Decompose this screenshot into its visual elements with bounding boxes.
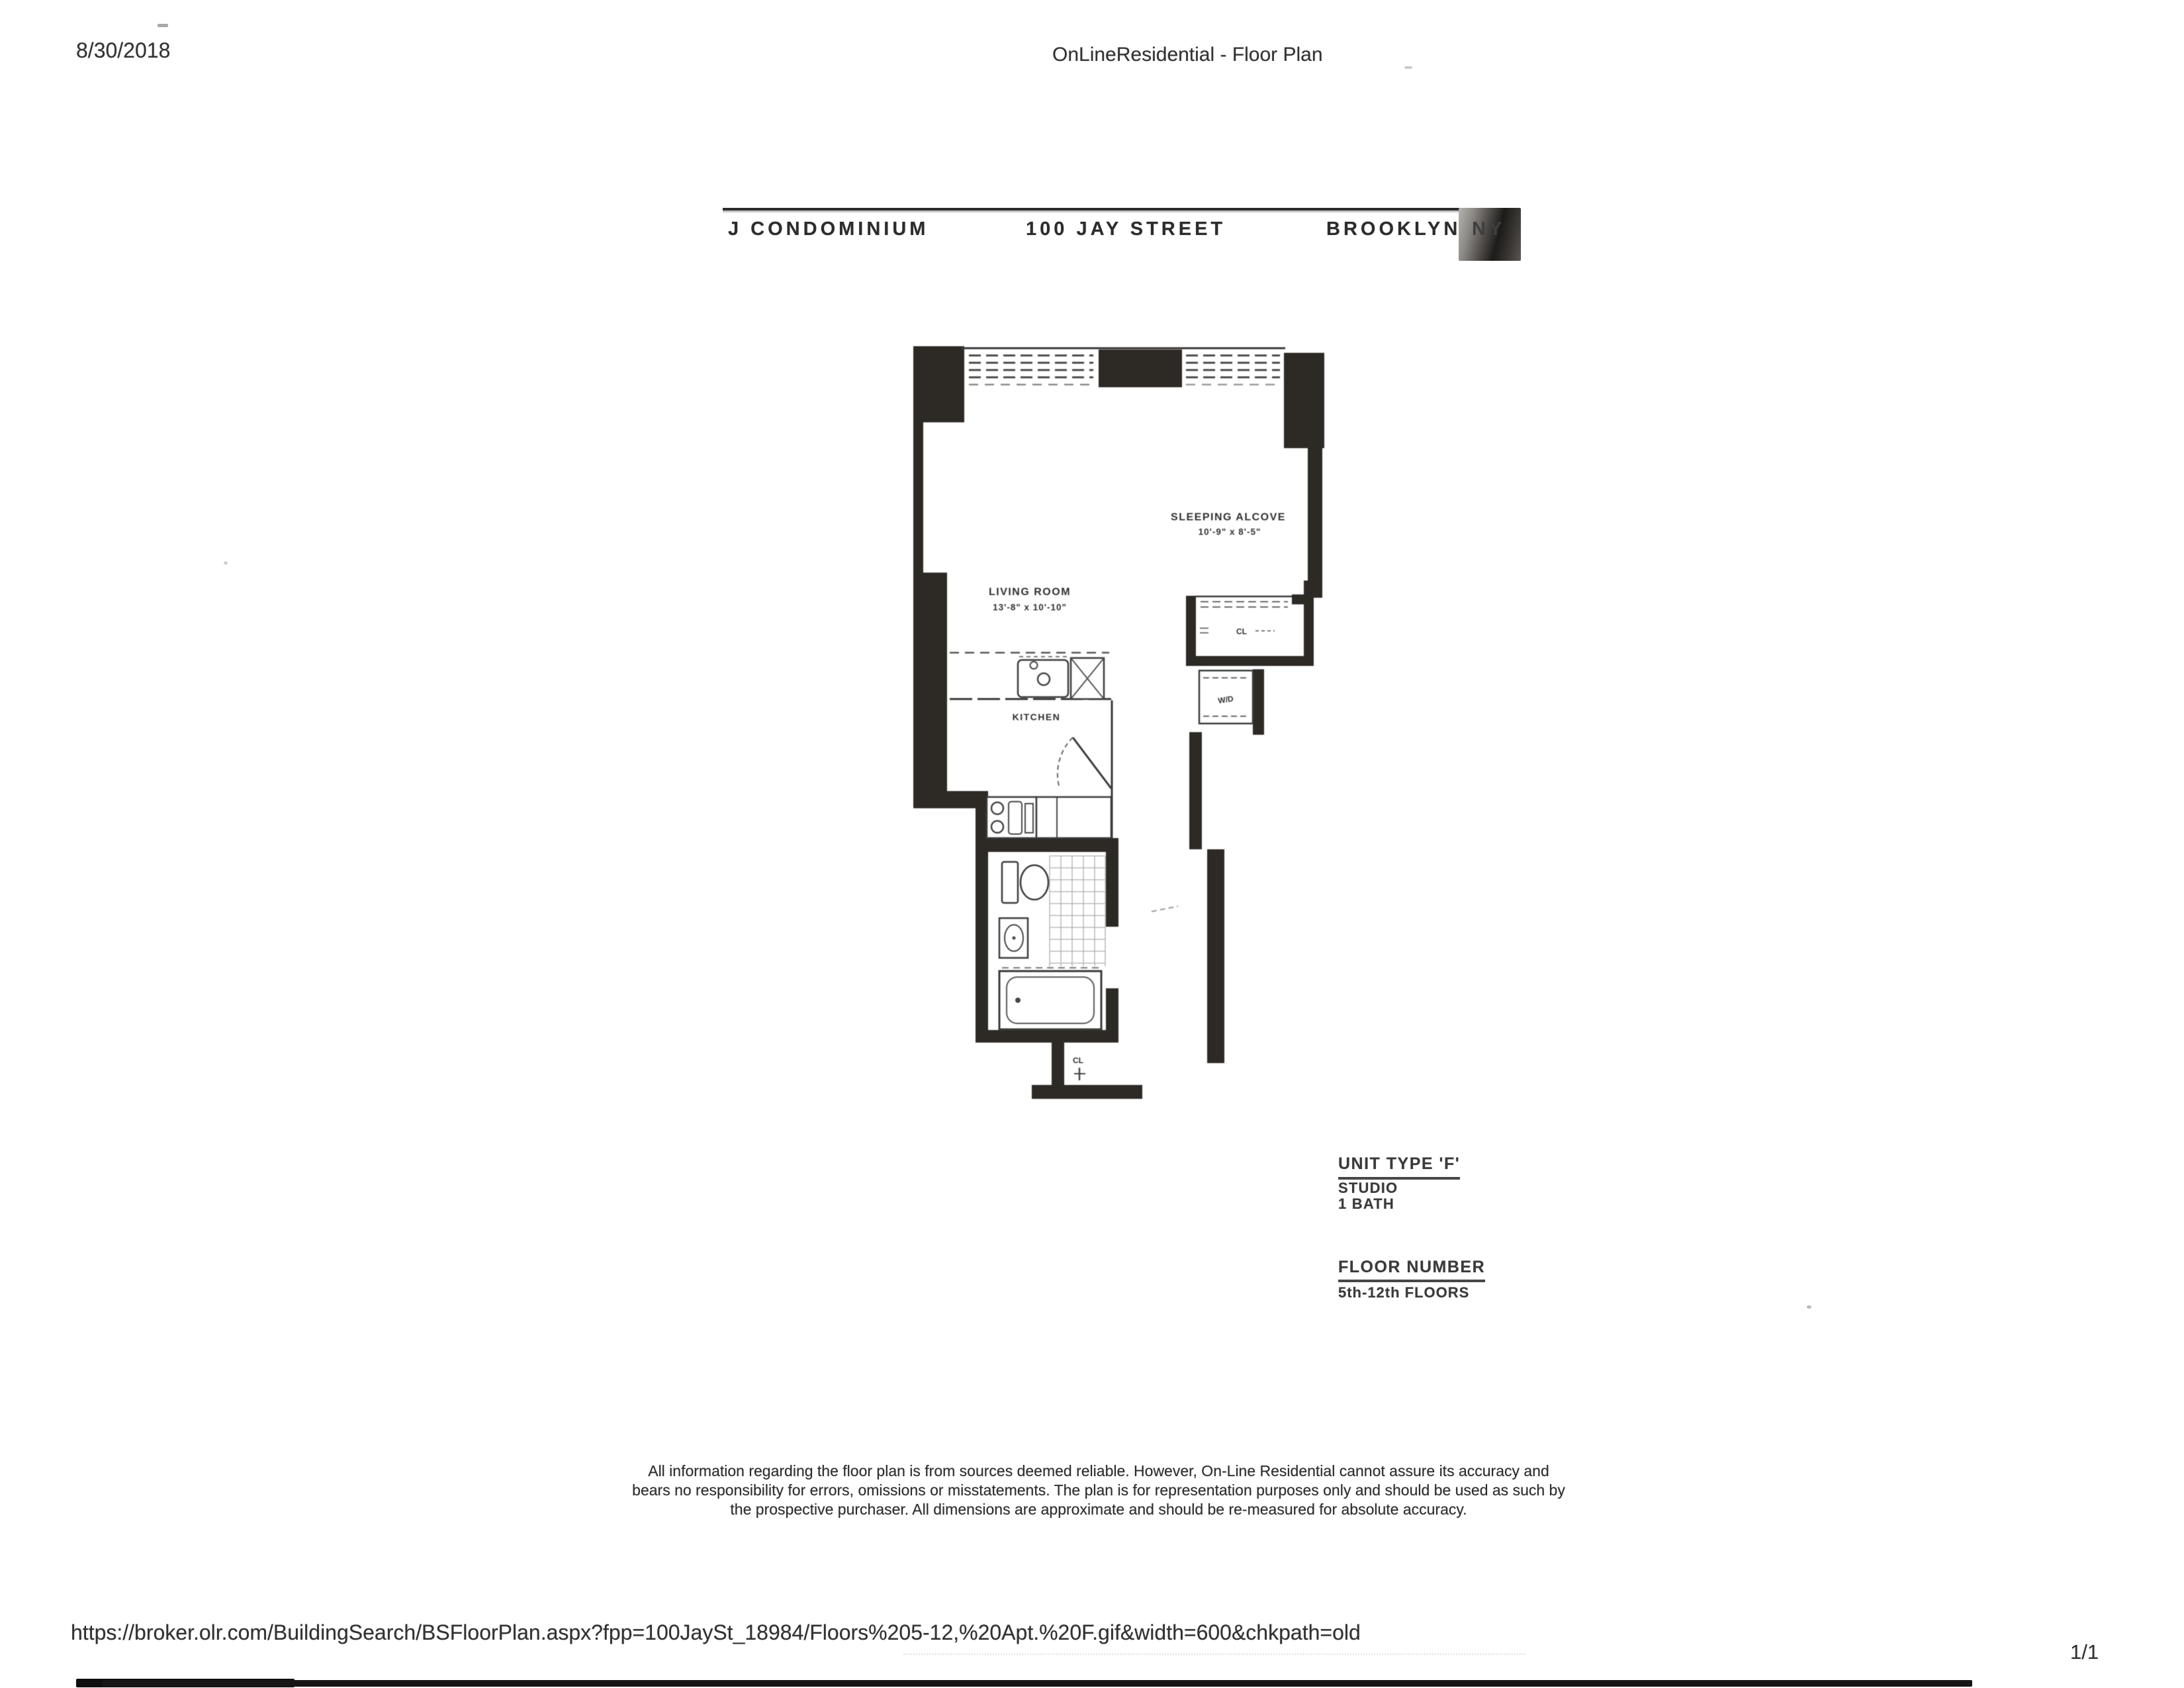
- unit-type-heading: UNIT TYPE 'F': [1338, 1154, 1460, 1180]
- disclaimer: All information regarding the floor plan…: [629, 1462, 1569, 1519]
- wall: [913, 346, 1324, 1099]
- disclaimer-line: bears no responsibility for errors, omis…: [629, 1481, 1569, 1500]
- sink-icon: [1018, 660, 1068, 697]
- entry-closet-label: CL: [1073, 1056, 1083, 1065]
- bathtub-icon: [999, 971, 1101, 1029]
- unit-layout: STUDIO: [1338, 1180, 1398, 1197]
- living-room-dims: 13'-8" x 10'-10": [993, 602, 1067, 612]
- scan-speck: [224, 561, 228, 565]
- closet-label: CL: [1236, 627, 1247, 636]
- disclaimer-line: the prospective purchaser. All dimension…: [629, 1500, 1569, 1519]
- scan-speck: [158, 24, 168, 27]
- disclaimer-line: All information regarding the floor plan…: [629, 1462, 1569, 1481]
- closet-rod-icon: [1074, 1068, 1085, 1080]
- building-address: 100 JAY STREET: [1026, 218, 1226, 240]
- building-state: NY: [1472, 218, 1505, 240]
- scan-artifact-line: [903, 1654, 1525, 1655]
- print-title: OnLineResidential - Floor Plan: [1052, 44, 1323, 66]
- floor-range: 5th-12th FLOORS: [1338, 1284, 1469, 1301]
- print-date: 8/30/2018: [76, 38, 170, 63]
- tile-floor: [1050, 856, 1105, 966]
- scan-edge-bar: [103, 1680, 1972, 1687]
- kitchen-counter: [950, 653, 1111, 699]
- living-room-label: LIVING ROOM: [989, 586, 1071, 598]
- kitchen-label: KITCHEN: [1013, 712, 1061, 722]
- scan-speck: [1807, 1305, 1811, 1309]
- scanned-floorplan-page: 8/30/2018 OnLineResidential - Floor Plan…: [0, 0, 2184, 1688]
- building-city: BROOKLYN,: [1326, 218, 1469, 240]
- floor-plan-drawing: SLEEPING ALCOVE 10'-9" x 8'-5" LIVING RO…: [913, 334, 1343, 1102]
- building-header: J CONDOMINIUM 100 JAY STREET BROOKLYN, N…: [723, 208, 1524, 269]
- bathroom: [999, 856, 1105, 1029]
- scan-artifact: [1152, 906, 1178, 912]
- toilet-icon: [1002, 862, 1048, 903]
- stove-icon: [987, 797, 1111, 838]
- bath-sink-icon: [999, 918, 1028, 958]
- footer-url: https://broker.olr.com/BuildingSearch/BS…: [71, 1620, 1361, 1645]
- scan-speck: [1404, 66, 1412, 69]
- door-swing-icon: [1058, 737, 1111, 788]
- floor-number-heading: FLOOR NUMBER: [1338, 1258, 1485, 1282]
- dishwasher-icon: [1071, 658, 1104, 699]
- header-rule: [723, 208, 1512, 211]
- sleeping-alcove-dims: 10'-9" x 8'-5": [1199, 527, 1261, 537]
- page-number: 1/1: [2070, 1640, 2099, 1664]
- building-name: J CONDOMINIUM: [728, 218, 929, 240]
- sleeping-alcove-label: SLEEPING ALCOVE: [1171, 512, 1286, 523]
- unit-bath: 1 BATH: [1338, 1196, 1394, 1213]
